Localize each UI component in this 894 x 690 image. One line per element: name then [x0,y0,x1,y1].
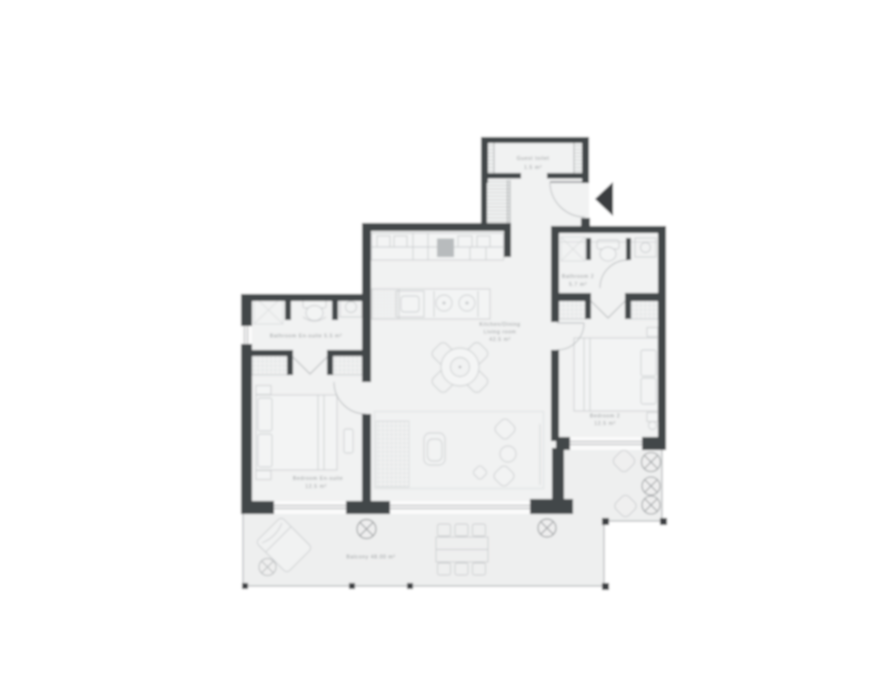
svg-text:Living room: Living room [484,330,517,336]
svg-text:Guest toilet: Guest toilet [517,156,550,162]
svg-text:Bathroom 2: Bathroom 2 [562,274,594,280]
svg-text:12.5 m²: 12.5 m² [594,421,615,427]
svg-text:Bedroom 2: Bedroom 2 [590,414,620,420]
svg-text:42.5 m²: 42.5 m² [489,337,510,343]
svg-text:1.5 m²: 1.5 m² [524,165,542,171]
svg-text:Bedroom En-suite: Bedroom En-suite [293,476,343,482]
svg-text:Bathroom En-suite 5.5 m²: Bathroom En-suite 5.5 m² [270,334,342,340]
svg-text:Kitchen/Dining: Kitchen/Dining [479,322,520,328]
svg-text:Balcony 48.00 m²: Balcony 48.00 m² [346,555,395,561]
svg-text:5.7 m²: 5.7 m² [569,282,587,288]
svg-text:12.5 m²: 12.5 m² [305,484,326,490]
